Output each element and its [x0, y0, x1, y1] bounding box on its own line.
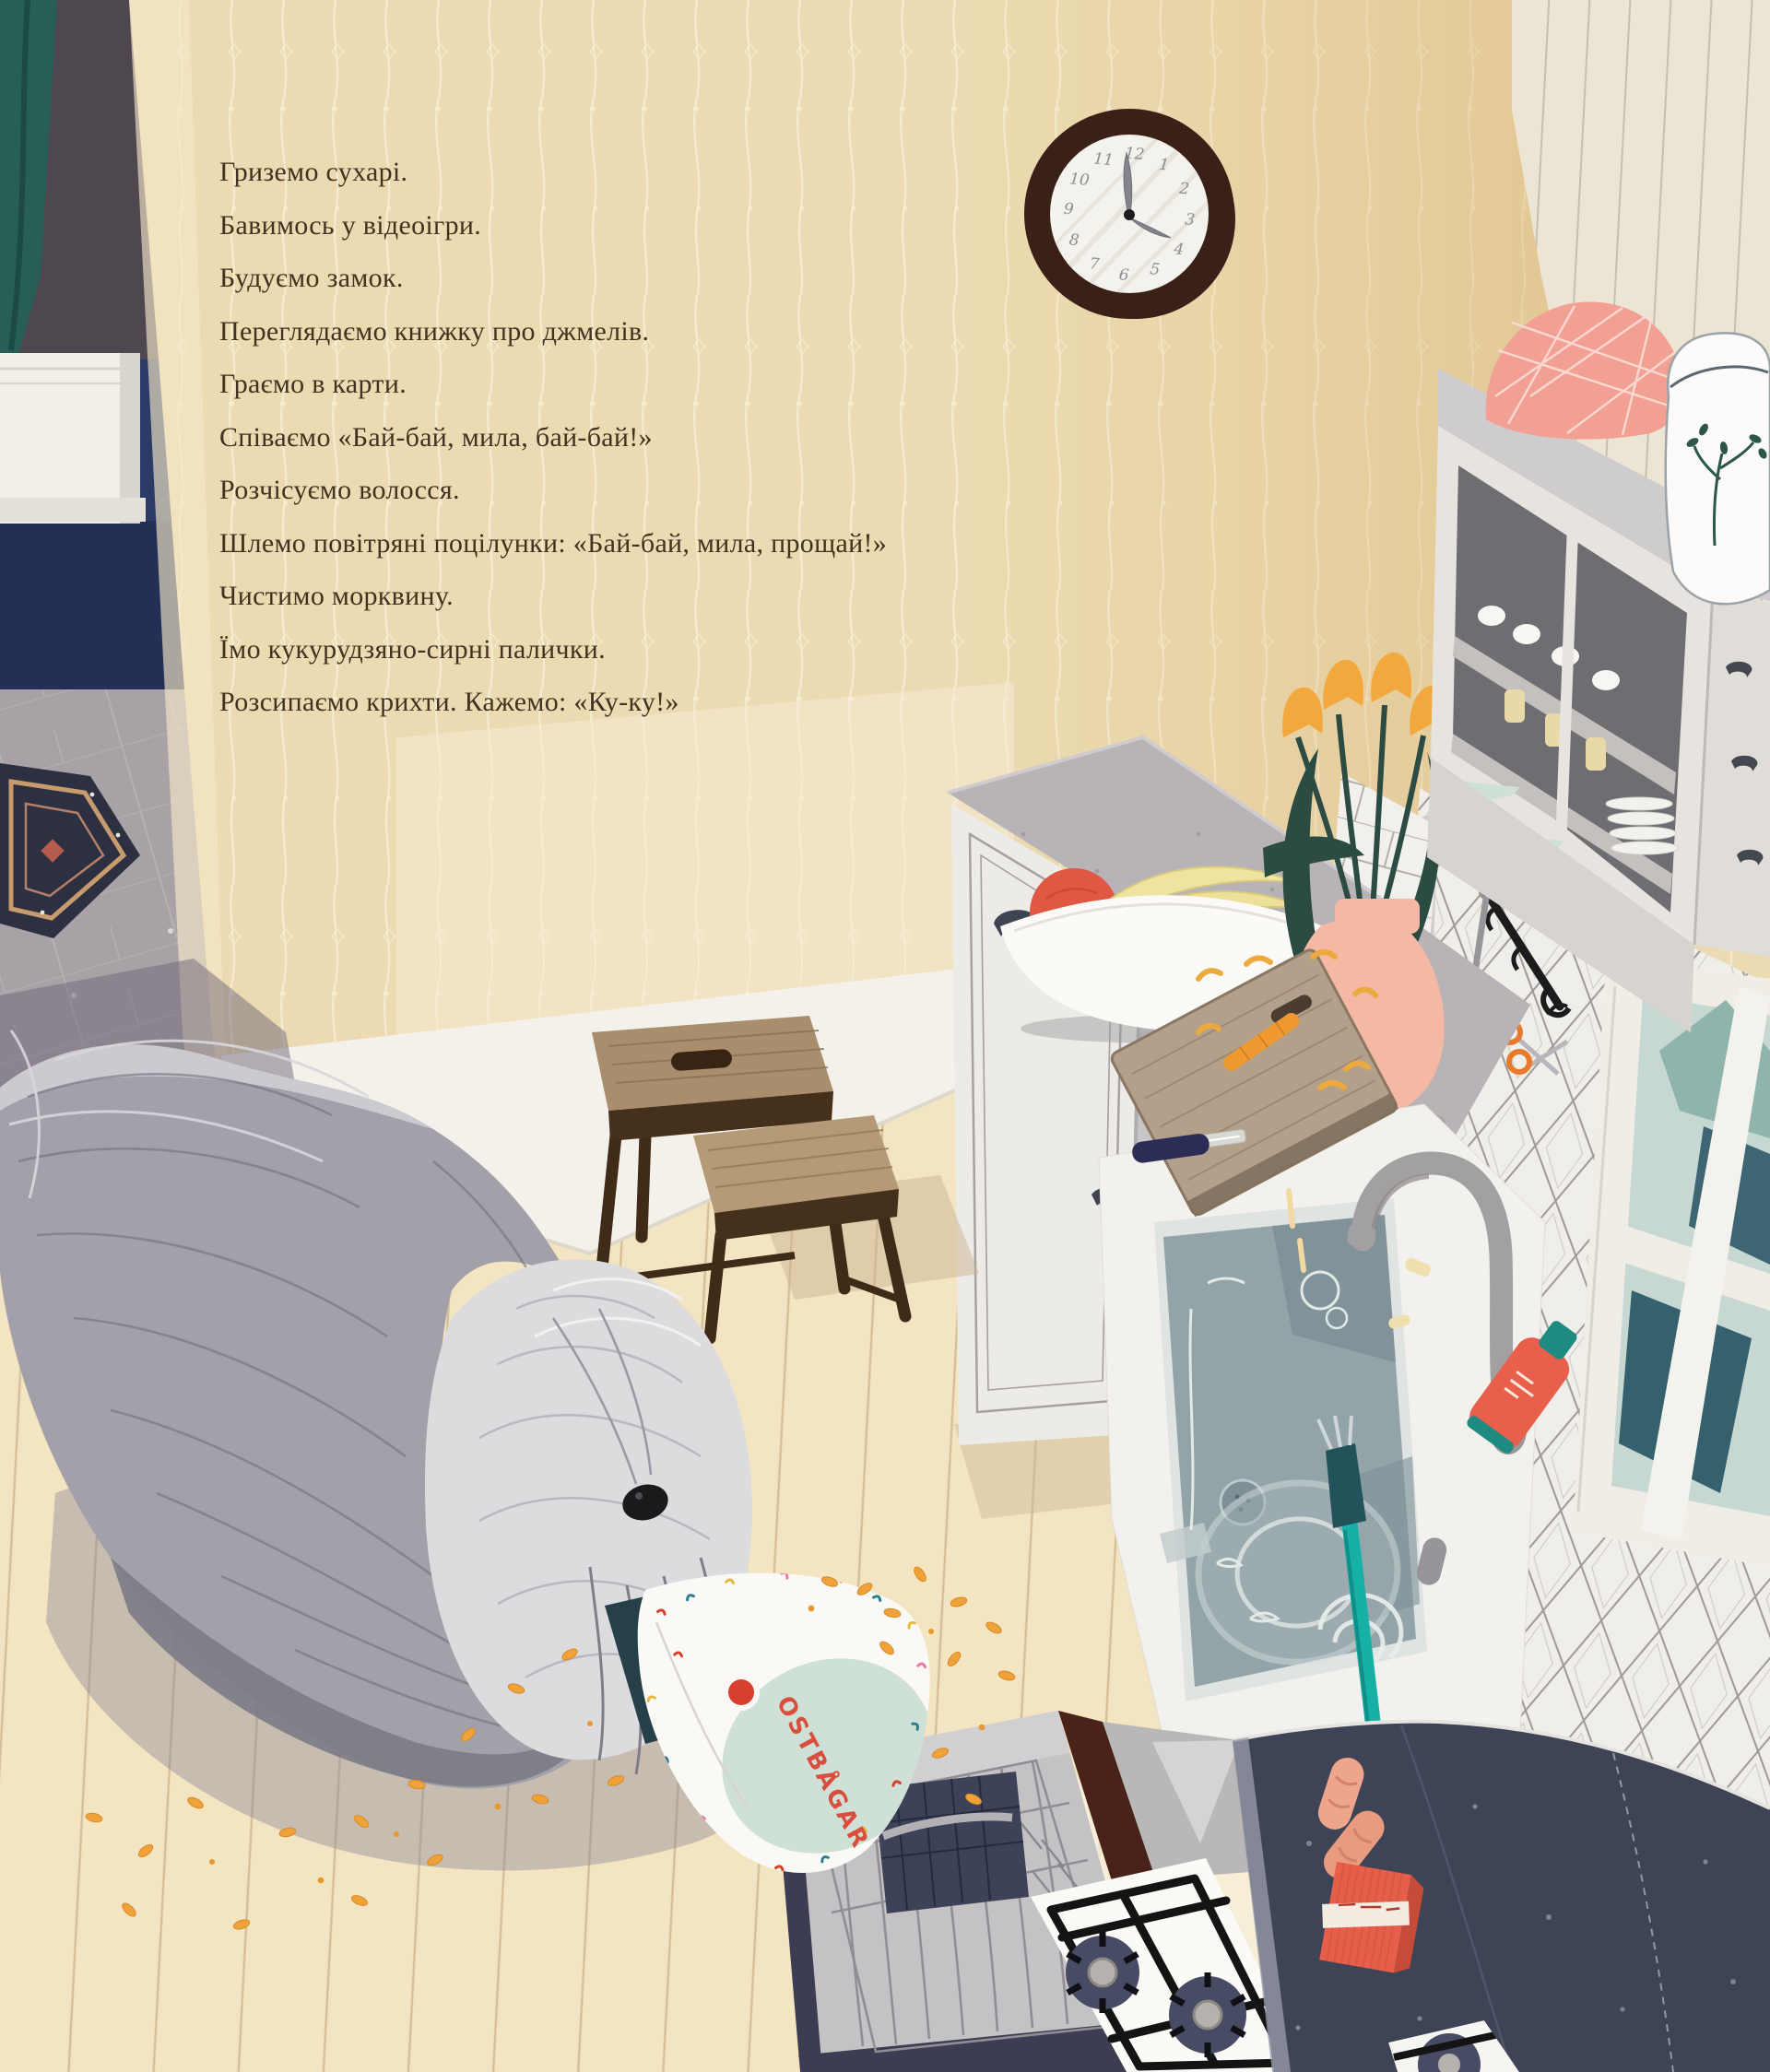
story-line: Розсипаємо крихти. Кажемо: «Ку-ку!» — [219, 676, 1049, 729]
story-line: Шлемо повітряні поцілунки: «Бай-бай, мил… — [219, 517, 1049, 571]
window — [1573, 957, 1770, 1567]
clock-numeral: 3 — [1184, 210, 1196, 230]
clock-numeral: 10 — [1068, 170, 1090, 190]
clock-numeral: 7 — [1089, 254, 1101, 274]
clock-numeral: 1 — [1158, 156, 1170, 175]
story-line: Гриземо сухарі. — [219, 146, 1049, 199]
story-line: Бавимось у відеоігри. — [219, 199, 1049, 253]
clock-numeral: 5 — [1150, 260, 1162, 279]
clock-numeral: 9 — [1063, 200, 1075, 219]
story-line: Розчісуємо волосся. — [219, 464, 1049, 517]
clock-numeral: 8 — [1068, 230, 1080, 250]
jug — [1666, 333, 1770, 604]
bag-dot — [728, 1679, 754, 1705]
story-line: Будуємо замок. — [219, 252, 1049, 305]
story-line: Граємо в карти. — [219, 358, 1049, 411]
clock-numeral: 11 — [1092, 149, 1114, 170]
sink — [1099, 1104, 1591, 1808]
oven-door — [1233, 1722, 1770, 2072]
story-text: Гриземо сухарі. Бавимось у відеоігри. Бу… — [219, 146, 1049, 729]
story-line: Переглядаємо книжку про джмелів. — [219, 305, 1049, 359]
clock-numeral: 6 — [1118, 265, 1130, 285]
story-line: Співаємо «Бай-бай, мила, бай-бай!» — [219, 411, 1049, 465]
story-line: Їмо кукурудзяно-сирні палички. — [219, 623, 1049, 677]
clock-numeral: 2 — [1177, 180, 1190, 199]
wall-clock: 12 1 2 3 4 5 6 7 8 9 10 11 — [1024, 109, 1235, 319]
book-page: 12 1 2 3 4 5 6 7 8 9 10 11 — [0, 0, 1770, 2072]
story-line: Чистимо морквину. — [219, 570, 1049, 623]
clock-numeral: 4 — [1173, 240, 1186, 259]
hall-column — [0, 353, 146, 524]
